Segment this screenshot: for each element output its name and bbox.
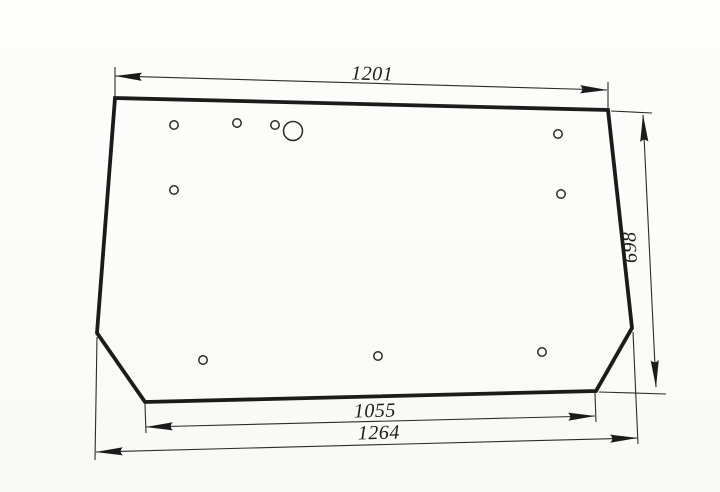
mounting-hole: [557, 190, 565, 198]
extension-line: [95, 337, 97, 460]
mounting-hole: [199, 356, 207, 364]
glass-outline: [97, 98, 632, 402]
extension-line: [633, 332, 638, 444]
dimension-label-side-height: 698: [618, 231, 642, 264]
drawing-page: 1201 698 1055 1264: [0, 0, 720, 492]
dimension-label-bottom-inner-width: 1055: [354, 399, 397, 422]
mounting-hole: [170, 186, 178, 194]
extension-line: [611, 111, 652, 113]
large-mounting-hole: [284, 122, 303, 141]
extension-line: [599, 392, 666, 394]
dimension-label-top-width: 1201: [351, 62, 394, 85]
mounting-hole: [374, 352, 382, 360]
mounting-hole: [538, 348, 546, 356]
mounting-hole: [170, 121, 178, 129]
extension-line: [145, 404, 146, 433]
mounting-hole: [554, 130, 562, 138]
extension-line: [595, 393, 596, 422]
dimension-label-bottom-overall-width: 1264: [358, 421, 401, 444]
mounting-hole: [233, 119, 241, 127]
glass-panel-drawing: 1201 698 1055 1264: [0, 0, 720, 492]
dimension-line-side-height: [643, 115, 656, 387]
mounting-hole: [271, 121, 279, 129]
